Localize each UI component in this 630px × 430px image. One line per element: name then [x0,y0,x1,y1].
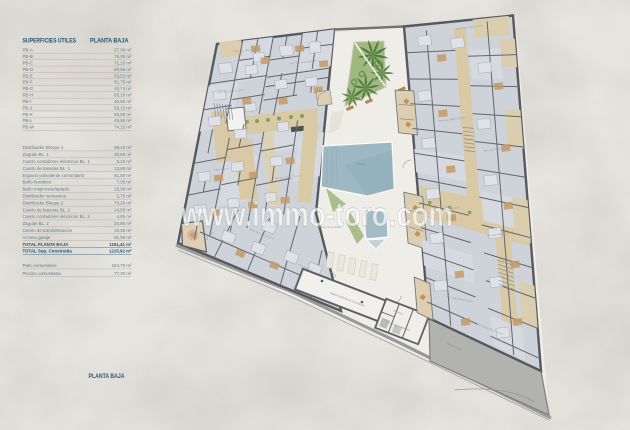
svg-text:15,90 m²: 15,90 m² [114,187,132,192]
svg-text:PB-J: PB-J [23,105,33,110]
svg-text:PLANTA BAJA: PLANTA BAJA [89,373,125,380]
svg-text:53,52 m²: 53,52 m² [114,73,132,78]
svg-text:81,50 m²: 81,50 m² [114,235,132,240]
svg-text:13,60 m²: 13,60 m² [114,166,132,171]
svg-text:74,15 m²: 74,15 m² [114,125,132,130]
svg-text:5,10 m²: 5,10 m² [117,159,132,164]
svg-text:69,55 m²: 69,55 m² [114,67,132,72]
svg-text:Piscina comunitaria: Piscina comunitaria [23,271,62,276]
svg-text:1151,41 m²: 1151,41 m² [109,242,132,247]
svg-text:76,00 m²: 76,00 m² [114,54,132,59]
svg-text:TOTAL PLANTA BAJA: TOTAL PLANTA BAJA [23,242,70,247]
svg-text:65,10 m²: 65,10 m² [114,93,132,98]
svg-text:Baño hombres: Baño hombres [23,180,52,185]
svg-text:PB-B: PB-B [23,54,33,59]
svg-text:70,20 m²: 70,20 m² [114,200,132,205]
svg-text:Cuarto de basuras BL. 1: Cuarto de basuras BL. 1 [23,166,71,171]
svg-text:59,15 m²: 59,15 m² [114,105,132,110]
svg-text:1215,92 m²: 1215,92 m² [109,249,132,254]
svg-text:PB-I: PB-I [23,99,32,104]
svg-text:Cuarto contadores eléctricos B: Cuarto contadores eléctricos BL. 2 [23,214,91,219]
svg-text:16,30 m²: 16,30 m² [114,228,132,233]
svg-text:Baño mujeres/adaptado: Baño mujeres/adaptado [23,187,70,192]
svg-text:PB-D: PB-D [23,67,34,72]
svg-text:Acceso garaje: Acceso garaje [23,235,51,240]
svg-text:TOTAL Sup. Construida: TOTAL Sup. Construida [23,249,73,254]
svg-text:14,50 m²: 14,50 m² [114,207,132,212]
svg-text:Distribuidor vestuarios: Distribuidor vestuarios [23,194,67,199]
svg-text:71,10 m²: 71,10 m² [114,60,132,65]
svg-text:77,30 m²: 77,30 m² [114,271,132,276]
svg-text:51,75 m²: 51,75 m² [114,80,132,85]
svg-text:57,00 m²: 57,00 m² [114,48,132,53]
svg-text:Espacio polivalente comunitari: Espacio polivalente comunitario [23,173,85,178]
svg-text:49,50 m²: 49,50 m² [114,118,132,123]
svg-text:PB-K: PB-K [23,112,33,117]
svg-text:Piscina: Piscina [356,162,365,166]
svg-text:46,65 m²: 46,65 m² [114,99,132,104]
svg-text:PB-A: PB-A [23,48,33,53]
svg-text:20,80 m²: 20,80 m² [114,221,132,226]
svg-text:PB-F: PB-F [23,80,33,85]
svg-text:www.immo-toro.com: www.immo-toro.com [180,196,453,234]
svg-text:PB-H: PB-H [23,93,34,98]
svg-text:58,10 m²: 58,10 m² [114,145,132,150]
svg-text:Distribuidor Bloque 1: Distribuidor Bloque 1 [23,145,64,150]
svg-text:2,75 m²: 2,75 m² [117,194,132,199]
svg-text:PB-G: PB-G [23,86,34,91]
svg-text:244,70 m²: 244,70 m² [112,263,132,268]
svg-text:Zaguán BL. 2: Zaguán BL. 2 [23,221,50,226]
svg-text:Zaguán BL. 1: Zaguán BL. 1 [23,152,50,157]
svg-text:51,50 m²: 51,50 m² [114,173,132,178]
svg-text:Cuarto contadores eléctricos B: Cuarto contadores eléctricos BL. 1 [23,159,91,164]
svg-text:Distribuidor Bloque 2: Distribuidor Bloque 2 [23,200,64,205]
svg-text:Patio comunitario: Patio comunitario [23,263,57,268]
svg-text:PB-L: PB-L [23,118,33,123]
svg-text:SUPERFICIES ÚTILES: SUPERFICIES ÚTILES [23,38,77,45]
svg-text:PB-C: PB-C [23,60,34,65]
svg-text:42,74 m²: 42,74 m² [114,86,132,91]
svg-text:PLANTA BAJA: PLANTA BAJA [90,39,129,45]
svg-text:7,05 m²: 7,05 m² [117,180,132,185]
svg-text:Cuarto de basuras BL. 2: Cuarto de basuras BL. 2 [23,207,71,212]
svg-text:Centro de transformación: Centro de transformación [23,228,73,233]
svg-text:4,85 m²: 4,85 m² [117,214,132,219]
svg-text:PB-M: PB-M [23,125,34,130]
svg-text:53,50 m²: 53,50 m² [114,112,132,117]
svg-text:PB-E: PB-E [23,73,33,78]
svg-text:20,60 m²: 20,60 m² [114,152,132,157]
